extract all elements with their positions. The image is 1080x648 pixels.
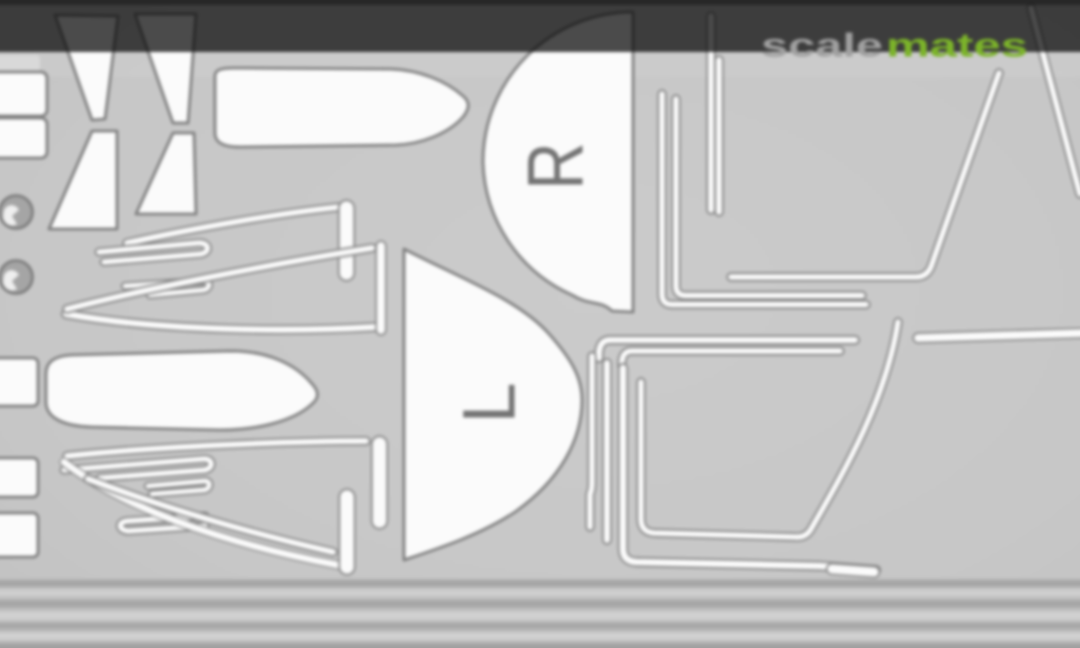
svg-text:L: L [448, 382, 531, 423]
svg-text:R: R [512, 142, 600, 190]
svg-text:scalemates: scalemates [761, 27, 1028, 64]
